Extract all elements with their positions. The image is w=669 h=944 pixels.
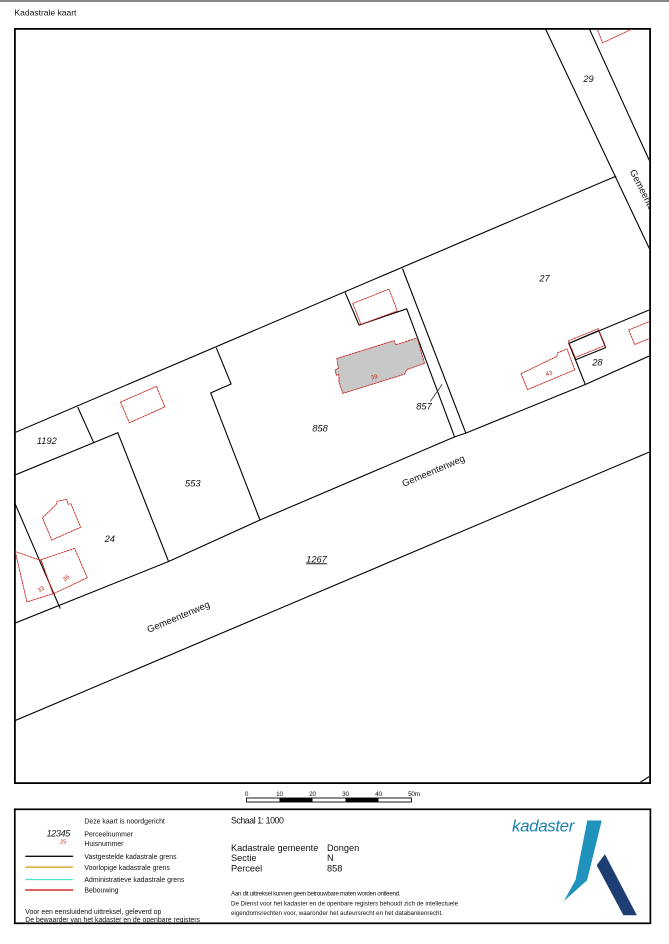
svg-text:10: 10 xyxy=(276,791,283,798)
svg-text:28: 28 xyxy=(591,358,603,368)
svg-text:20: 20 xyxy=(309,791,316,798)
svg-text:Administratieve kadastrale gre: Administratieve kadastrale grens xyxy=(84,877,185,884)
svg-text:29: 29 xyxy=(582,74,593,84)
svg-text:27: 27 xyxy=(538,274,550,284)
svg-text:25: 25 xyxy=(60,840,66,846)
svg-text:kadaster: kadaster xyxy=(512,817,576,836)
svg-text:De Dienst voor het kadaster en: De Dienst voor het kadaster en de openba… xyxy=(231,900,459,907)
svg-text:Sectie: Sectie xyxy=(231,853,257,863)
svg-text:857: 857 xyxy=(416,402,432,412)
svg-text:Dongen: Dongen xyxy=(327,843,359,853)
svg-text:Kadastrale kaart: Kadastrale kaart xyxy=(15,8,78,18)
svg-text:858: 858 xyxy=(312,424,328,434)
svg-text:Voorlopige kadastrale grens: Voorlopige kadastrale grens xyxy=(84,865,170,872)
svg-text:30: 30 xyxy=(342,791,349,798)
svg-text:N: N xyxy=(327,853,334,863)
svg-text:1192: 1192 xyxy=(37,436,58,446)
svg-text:Voor een eensluidend uittrekse: Voor een eensluidend uittreksel, gelever… xyxy=(25,909,161,916)
svg-text:Perceel: Perceel xyxy=(231,864,262,874)
svg-text:eigendomsrechten voor, waarond: eigendomsrechten voor, waaronder het aut… xyxy=(231,910,443,917)
svg-text:50m: 50m xyxy=(408,791,420,798)
svg-text:De bewaarder van het kadaster: De bewaarder van het kadaster en de open… xyxy=(25,917,200,924)
svg-text:Aan dit uittreksel kunnen geen: Aan dit uittreksel kunnen geen betrouwba… xyxy=(231,891,401,898)
svg-text:1267: 1267 xyxy=(306,554,328,564)
svg-text:Kadastrale gemeente: Kadastrale gemeente xyxy=(231,843,318,853)
svg-text:Bebouwing: Bebouwing xyxy=(84,888,118,895)
svg-text:Huisnummer: Huisnummer xyxy=(84,841,124,848)
svg-text:Vastgestelde kadastrale grens: Vastgestelde kadastrale grens xyxy=(84,854,177,861)
svg-text:12345: 12345 xyxy=(46,829,71,839)
svg-text:Deze kaart is noordgericht: Deze kaart is noordgericht xyxy=(84,819,165,826)
svg-text:858: 858 xyxy=(327,864,342,874)
svg-text:553: 553 xyxy=(185,478,201,488)
svg-text:24: 24 xyxy=(104,534,115,544)
svg-text:Perceelnummer: Perceelnummer xyxy=(84,831,133,838)
svg-text:40: 40 xyxy=(375,791,382,798)
svg-text:Schaal 1: 1000: Schaal 1: 1000 xyxy=(231,815,284,825)
